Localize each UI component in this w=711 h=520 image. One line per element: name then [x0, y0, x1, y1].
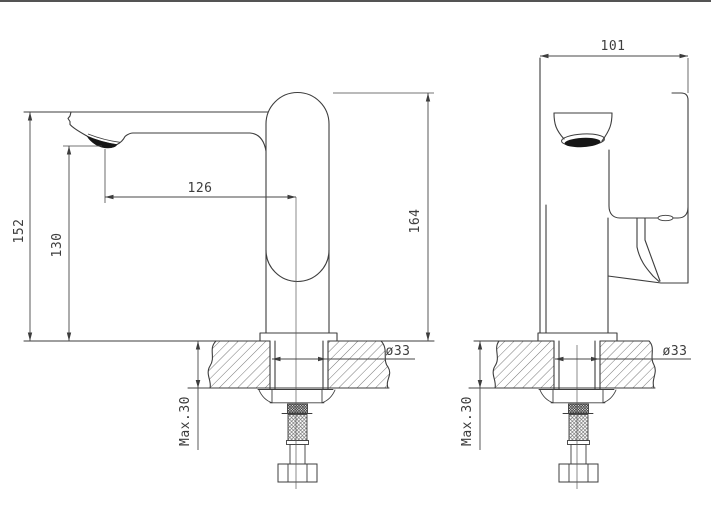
dim-overall-height-label: 152 [12, 219, 27, 244]
dim-spout-reach-label: 126 [188, 181, 213, 196]
technical-drawing: 152 130 126 164 ø33 Max.30 [0, 0, 711, 520]
dim-deck-thickness-label: Max.30 [178, 396, 193, 446]
front-view-dimensions: 152 130 126 164 ø33 Max.30 [12, 93, 434, 450]
faucet-body-outline-right [538, 58, 688, 389]
side-view: 101 ø33 Max.30 [460, 39, 691, 489]
dim-hole-diameter-right-label: ø33 [663, 344, 688, 359]
deck-hatch [208, 341, 390, 388]
dim-hole-diameter-label: ø33 [386, 344, 411, 359]
mounting-hardware-right [539, 390, 616, 483]
faucet-body-outline [24, 93, 337, 390]
deck-hatch-right [493, 341, 655, 388]
dim-spout-height-label: 130 [50, 233, 65, 258]
mounting-hardware [258, 390, 335, 483]
aerator-right [561, 133, 605, 148]
dim-body-height-label: 164 [408, 209, 423, 234]
dim-body-depth-label: 101 [601, 39, 626, 54]
drawing-canvas: 152 130 126 164 ø33 Max.30 [0, 0, 711, 520]
handle-screw-detail [658, 215, 673, 220]
front-view: 152 130 126 164 ø33 Max.30 [12, 93, 434, 490]
dim-deck-thickness-right-label: Max.30 [460, 396, 475, 446]
